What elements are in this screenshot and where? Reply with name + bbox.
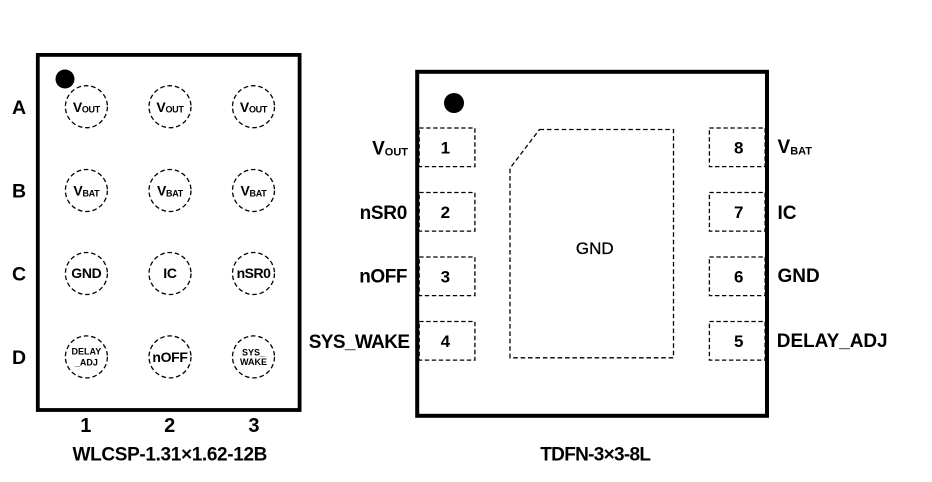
- svg-text:VBAT: VBAT: [73, 183, 100, 199]
- svg-text:8: 8: [734, 139, 743, 158]
- svg-text:nOFF: nOFF: [359, 266, 407, 287]
- svg-text:_ADJ: _ADJ: [74, 357, 98, 367]
- svg-text:D: D: [12, 347, 26, 369]
- svg-text:nSR0: nSR0: [360, 203, 407, 224]
- svg-text:VBAT: VBAT: [241, 183, 268, 199]
- svg-text:VOUT: VOUT: [240, 99, 268, 115]
- svg-text:GND: GND: [71, 265, 101, 281]
- svg-text:2: 2: [441, 203, 450, 222]
- svg-text:4: 4: [441, 332, 451, 351]
- svg-text:IC: IC: [163, 265, 177, 281]
- svg-text:TDFN-3×3-8L: TDFN-3×3-8L: [540, 445, 651, 466]
- svg-text:A: A: [12, 97, 26, 119]
- svg-text:GND: GND: [576, 239, 614, 258]
- svg-text:5: 5: [734, 332, 743, 351]
- svg-text:7: 7: [734, 203, 743, 222]
- svg-text:WLCSP-1.31×1.62-12B: WLCSP-1.31×1.62-12B: [73, 445, 268, 466]
- svg-text:DELAY_ADJ: DELAY_ADJ: [777, 331, 888, 352]
- svg-text:1: 1: [80, 415, 91, 437]
- svg-text:VOUT: VOUT: [156, 99, 184, 115]
- svg-text:VOUT: VOUT: [73, 99, 101, 115]
- svg-text:6: 6: [734, 268, 743, 287]
- svg-text:SYS_WAKE: SYS_WAKE: [309, 332, 410, 353]
- svg-text:B: B: [12, 181, 26, 203]
- svg-text:2: 2: [164, 415, 175, 437]
- svg-text:C: C: [12, 264, 26, 286]
- svg-text:3: 3: [441, 268, 450, 287]
- svg-text:WAKE: WAKE: [240, 357, 267, 367]
- svg-text:nSR0: nSR0: [237, 265, 272, 281]
- svg-text:1: 1: [441, 139, 450, 158]
- svg-text:VOUT: VOUT: [372, 138, 408, 159]
- svg-text:VBAT: VBAT: [778, 137, 813, 158]
- svg-text:DELAY: DELAY: [72, 347, 102, 357]
- svg-text:GND: GND: [778, 266, 820, 287]
- svg-text:SYS_: SYS_: [242, 347, 266, 357]
- svg-text:nOFF: nOFF: [152, 349, 188, 365]
- svg-text:VBAT: VBAT: [157, 183, 184, 199]
- svg-text:3: 3: [248, 415, 259, 437]
- svg-text:IC: IC: [778, 203, 797, 224]
